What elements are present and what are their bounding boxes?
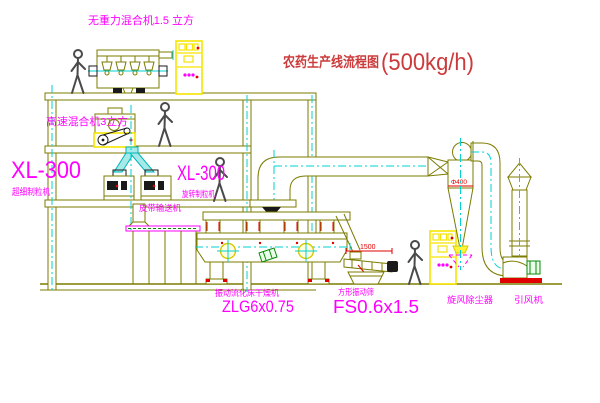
diagram-title: 农药生产线流程图 (282, 54, 379, 70)
fluid-bed-dryer (195, 212, 361, 284)
granulator-left-machine (104, 170, 134, 200)
label-granulator-mid-name: 旋转制粒机 (182, 189, 215, 199)
fan-base (500, 278, 542, 283)
sieve-roller (387, 261, 398, 272)
label-sieve-model: FS0.6x1.5 (333, 297, 419, 317)
label-dryer-model: ZLG6x0.75 (222, 297, 294, 316)
dimension-text: 1500 (360, 244, 376, 251)
mixer-outlet-pipe (159, 52, 172, 58)
diagram-title-capacity: (500kg/h) (381, 49, 474, 76)
cyclone-outlet-pipe (471, 141, 508, 276)
exhaust-duct (250, 150, 448, 218)
person-figure-top-floor (72, 50, 86, 93)
label-granulator-left-model: XL-300 (11, 157, 81, 184)
cyclone-diameter-text: Φ400 (451, 179, 467, 186)
person-figure-sieve (409, 241, 423, 284)
label-gravity-mixer: 无重力混合机1.5 立方 (88, 13, 194, 27)
process-flow-diagram: 1500 Φ400 (0, 0, 600, 403)
label-cyclone: 旋风除尘器 (447, 294, 493, 305)
diagram-canvas: 1500 Φ400 (0, 0, 600, 403)
gravity-free-mixer (88, 50, 173, 93)
label-belt-conveyor: 皮带输送机 (139, 203, 181, 213)
label-granulator-mid-model: XL-300 (177, 162, 225, 185)
control-cabinet-upper (176, 41, 202, 94)
belt-conveyor (126, 226, 200, 284)
induced-draft-fan (500, 257, 542, 283)
label-sieve-name: 方形振动筛 (338, 287, 374, 297)
fan-motor (527, 261, 540, 274)
label-high-speed-mixer: 高速混合机3立方 (46, 115, 128, 128)
dryer-top-beam (203, 212, 350, 220)
fan-volute (503, 257, 527, 278)
dryer-support-left (206, 262, 227, 284)
cyclone-vortex-finder (453, 143, 472, 162)
control-cabinet-lower (430, 231, 456, 284)
label-fan: 引风机 (514, 294, 543, 305)
ground-line (40, 284, 562, 290)
label-granulator-left-name: 超细制粒机 (12, 186, 50, 197)
person-figure-second-floor (159, 103, 173, 146)
floor-slab-second (45, 146, 251, 153)
granulator-right-machine (141, 170, 171, 200)
